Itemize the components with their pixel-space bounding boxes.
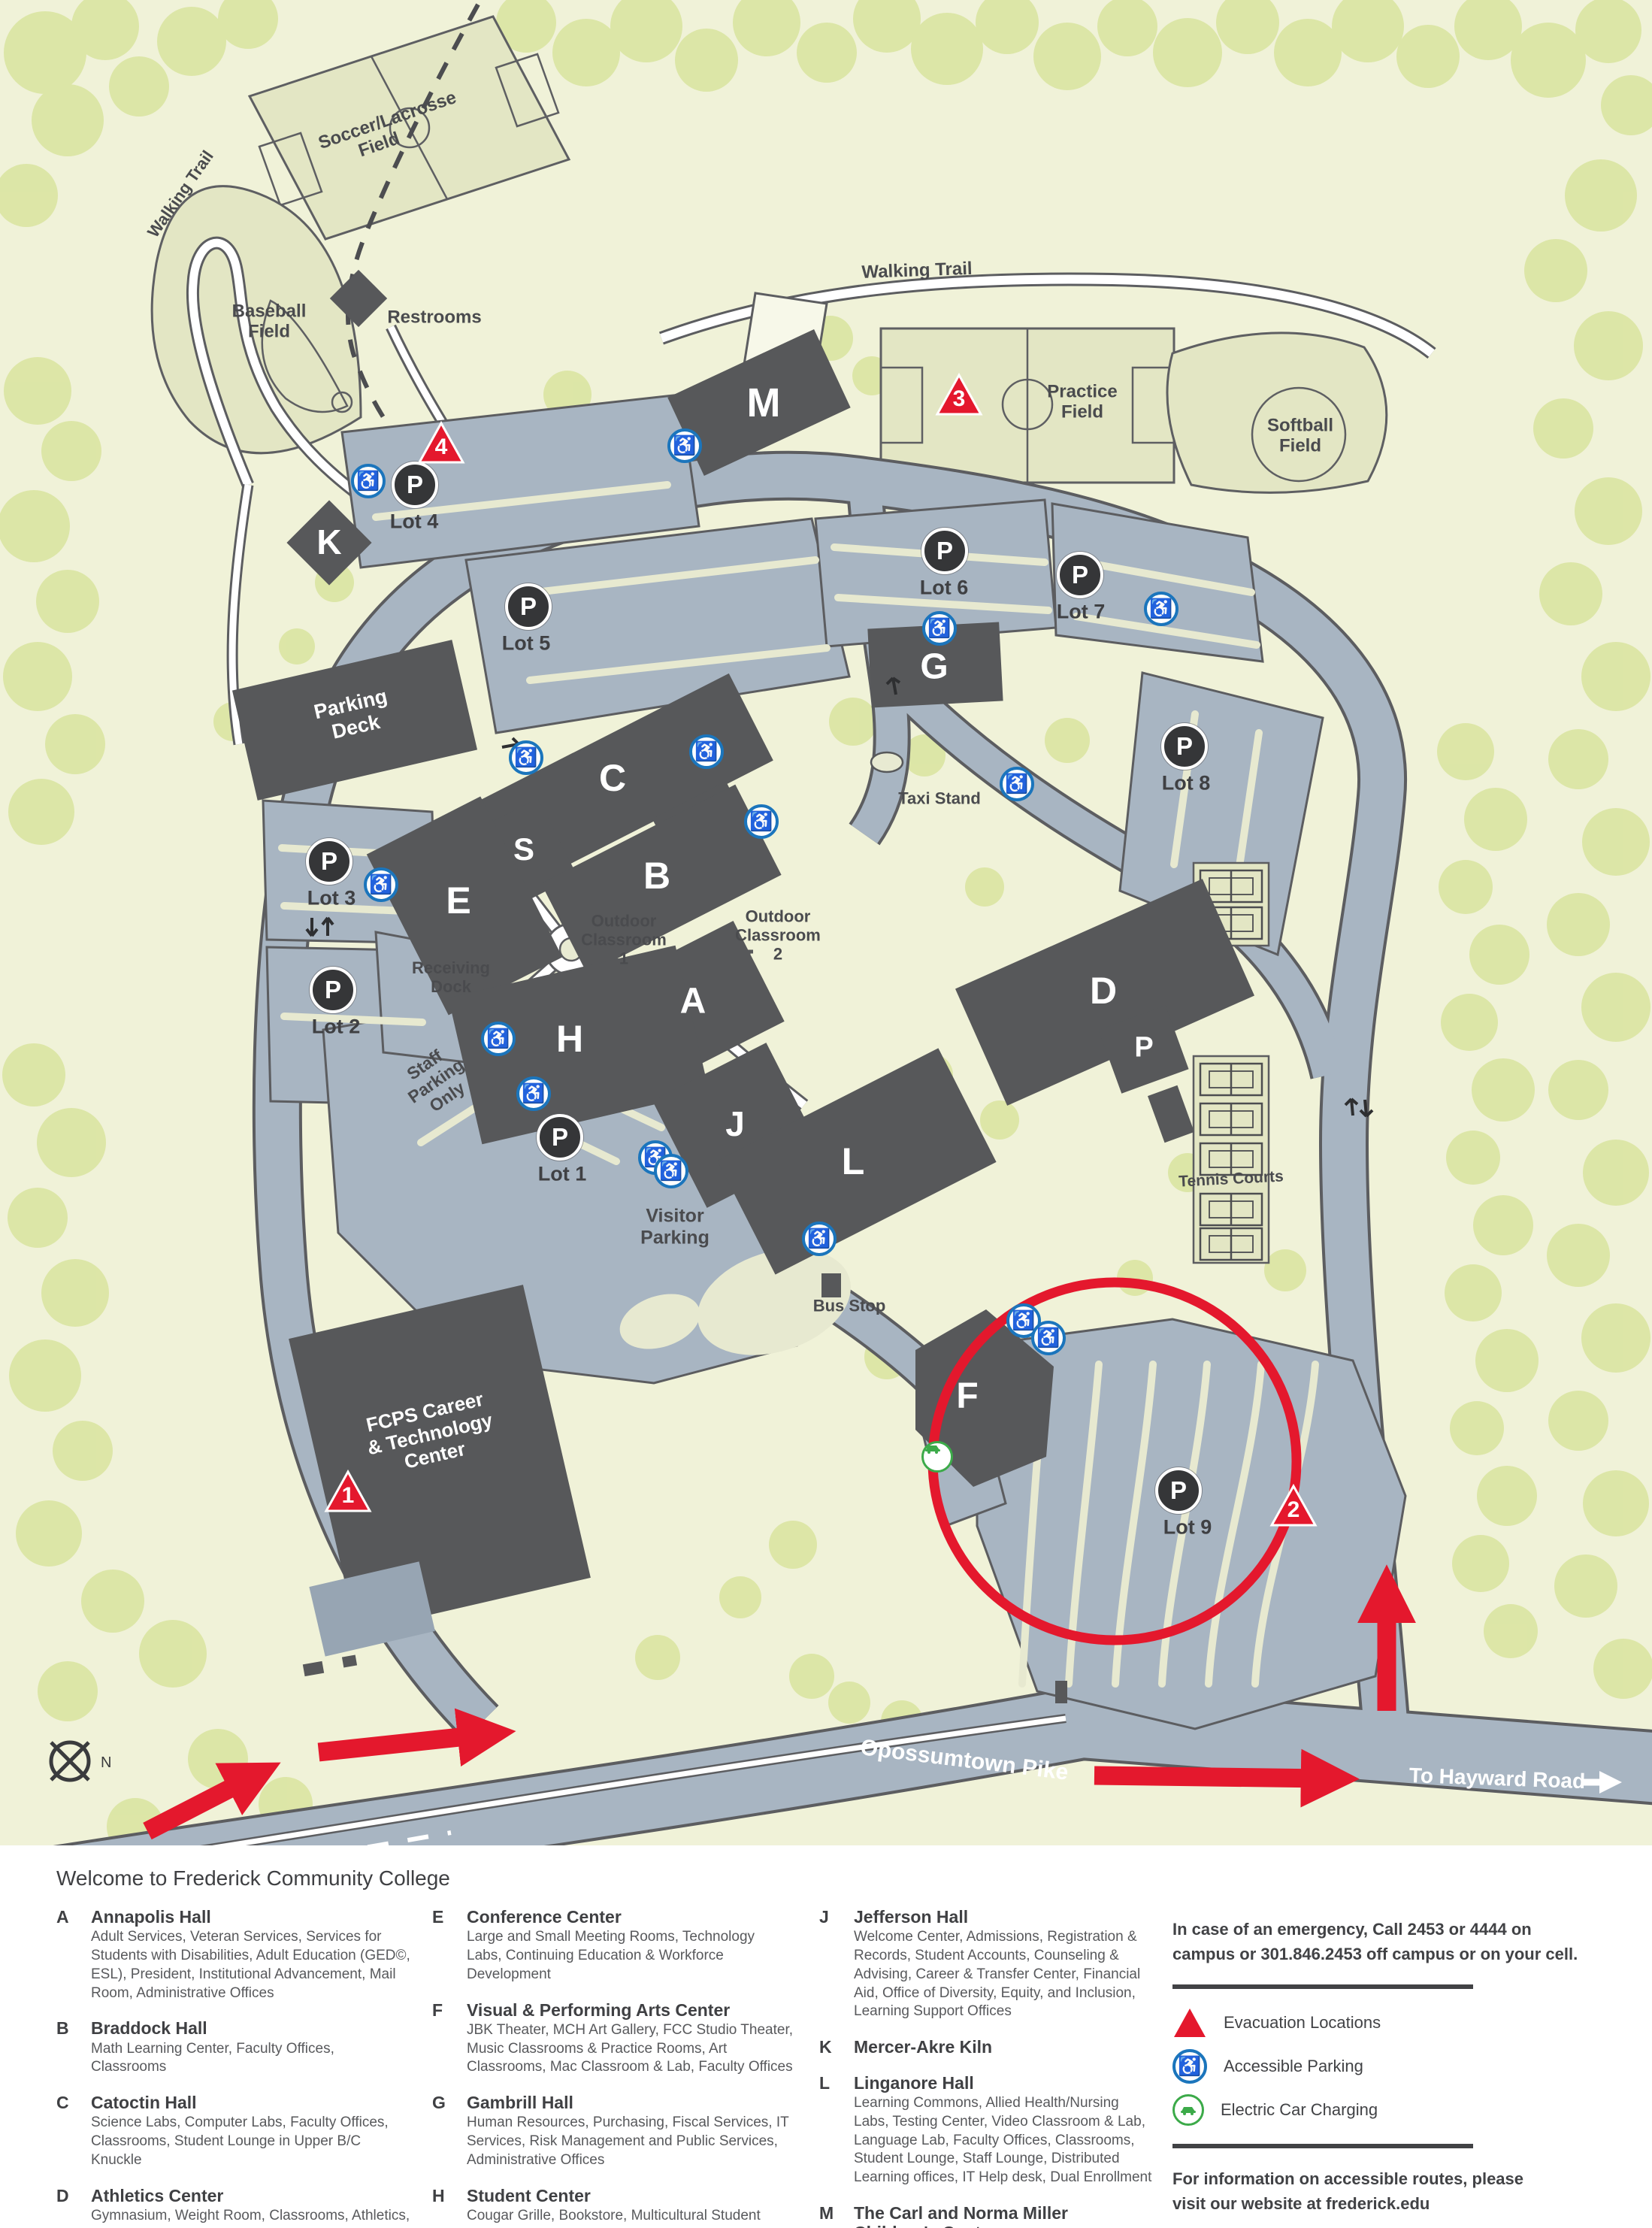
accessible-parking-icon: ♿ xyxy=(689,734,724,769)
tree xyxy=(38,1661,98,1721)
parking-marker-lot-2: P xyxy=(310,967,356,1013)
tree xyxy=(1565,159,1637,232)
tree xyxy=(1274,19,1342,86)
building-l-letter: L xyxy=(842,1140,865,1183)
lot-2-label: Lot 2 xyxy=(312,1016,361,1039)
legend-divider-bottom xyxy=(1172,2144,1473,2148)
parking-marker-lot-9: P xyxy=(1155,1467,1202,1514)
tree xyxy=(1045,718,1090,763)
softball-field-shape xyxy=(1167,333,1387,493)
tree xyxy=(53,1421,113,1481)
tree xyxy=(1439,860,1493,914)
accessible-parking-icon: ♿ xyxy=(516,1076,551,1111)
legend-column-4: In case of an emergency, Call 2453 or 44… xyxy=(1172,1917,1608,2216)
tree xyxy=(675,29,738,92)
tree xyxy=(37,1108,106,1177)
accessible-parking-icon: ♿ xyxy=(481,1022,516,1056)
lot-5-label: Lot 5 xyxy=(502,632,551,655)
legend-column-2: E Conference Center Large and Small Meet… xyxy=(432,1907,793,2228)
accessible-parking-icon: ♿ xyxy=(351,464,386,498)
outdoor-classroom-1-label: Outdoor Classroom 1 xyxy=(579,911,669,967)
building-c-letter: C xyxy=(599,756,626,800)
bus-stop-label: Bus Stop xyxy=(813,1296,886,1315)
tree xyxy=(8,1188,68,1248)
tree xyxy=(1593,1639,1652,1699)
building-g-letter: G xyxy=(920,646,948,688)
tree xyxy=(157,7,226,76)
tree xyxy=(1554,1554,1617,1618)
parking-marker-lot-4: P xyxy=(392,462,438,508)
tree xyxy=(41,421,101,481)
building-d-letter: D xyxy=(1090,969,1117,1013)
evacuation-location-1: 1 xyxy=(323,1469,373,1514)
tree xyxy=(109,56,169,117)
legend-entry-student-center: H Student Center Cougar Grille, Bookstor… xyxy=(432,2186,793,2228)
tree xyxy=(1548,729,1608,789)
tree xyxy=(45,714,105,774)
evacuation-location-2: 2 xyxy=(1269,1483,1318,1528)
accessible-parking-icon: ♿ xyxy=(1144,592,1178,626)
building-j-letter: J xyxy=(725,1103,745,1144)
tree xyxy=(1445,1264,1502,1321)
tree xyxy=(1547,893,1610,956)
electric-car-charging-icon xyxy=(921,1441,953,1473)
tree xyxy=(769,1521,817,1569)
tree xyxy=(635,1635,680,1680)
restrooms-label: Restrooms xyxy=(387,307,481,327)
building-h-letter: H xyxy=(556,1017,583,1061)
building-s-letter: S xyxy=(513,831,534,867)
tree xyxy=(1581,642,1650,711)
tree xyxy=(1524,239,1587,302)
accessible-parking-icon: ♿ xyxy=(667,428,702,463)
plant-operations-letter: P xyxy=(1134,1032,1153,1064)
tree xyxy=(41,1259,109,1327)
tree xyxy=(829,698,877,746)
outdoor-classroom-2-label: Outdoor Classroom 2 xyxy=(731,907,825,963)
tree xyxy=(16,1500,82,1567)
tree xyxy=(1475,1329,1539,1392)
evacuation-location-3: 3 xyxy=(934,372,984,417)
legend-entry-gambrill: G Gambrill Hall Human Resources, Purchas… xyxy=(432,2093,793,2170)
tree xyxy=(1473,1195,1533,1255)
tree xyxy=(980,1100,1019,1140)
tree xyxy=(1533,398,1593,459)
building-a-letter: A xyxy=(680,981,706,1022)
taxi-stand-label: Taxi Stand xyxy=(898,789,981,807)
tree xyxy=(552,19,620,86)
tree xyxy=(1396,25,1460,88)
tree xyxy=(1511,23,1586,98)
tree xyxy=(1472,1058,1535,1122)
accessible-parking-icon: ♿ xyxy=(364,867,398,902)
tree xyxy=(1581,973,1650,1042)
tree xyxy=(789,1654,834,1699)
legend-entry-linganore: L Linganore Hall Learning Commons, Allie… xyxy=(819,2073,1154,2187)
compass-north-label: N xyxy=(101,1754,111,1772)
tree xyxy=(1539,562,1602,625)
legend-entry-annapolis: A Annapolis Hall Adult Services, Veteran… xyxy=(56,1907,413,2002)
parking-marker-lot-1: P xyxy=(537,1114,583,1161)
accessible-routes-note: For information on accessible routes, pl… xyxy=(1172,2166,1548,2216)
legend-symbol-evacuation: Evacuation Locations xyxy=(1172,2007,1608,2039)
tree xyxy=(139,1620,207,1688)
tree xyxy=(965,867,1004,907)
tree xyxy=(1575,477,1642,545)
lot-6-label: Lot 6 xyxy=(920,577,969,600)
tree xyxy=(1264,1249,1306,1291)
visitor-parking-label: Visitor Parking xyxy=(634,1206,716,1249)
legend-entry-athletics: D Athletics Center Gymnasium, Weight Roo… xyxy=(56,2186,413,2228)
legend-entry-jefferson: J Jefferson Hall Welcome Center, Admissi… xyxy=(819,1907,1154,2021)
evacuation-location-4: 4 xyxy=(416,420,466,465)
parking-marker-lot-8: P xyxy=(1161,723,1208,770)
building-b-letter: B xyxy=(643,854,670,898)
tree xyxy=(81,1570,144,1633)
tree xyxy=(1582,808,1650,876)
tree xyxy=(1477,1466,1537,1526)
baseball-field-label: Baseball Field xyxy=(228,301,310,343)
tree xyxy=(0,490,70,562)
tree xyxy=(1484,1604,1538,1658)
tree xyxy=(1437,723,1494,780)
tree xyxy=(1469,925,1529,985)
tree xyxy=(1033,23,1101,90)
tree xyxy=(9,1340,81,1412)
tree xyxy=(1464,788,1527,851)
lot-9-label: Lot 9 xyxy=(1163,1516,1212,1539)
legend-entry-childrens-center: M The Carl and Norma Miller Children's C… xyxy=(819,2203,1154,2228)
parking-marker-lot-5: P xyxy=(505,583,552,630)
compass-rose: N xyxy=(45,1735,128,1788)
legend-entry-catoctin: C Catoctin Hall Science Labs, Computer L… xyxy=(56,2093,413,2170)
accessible-parking-icon: ♿ xyxy=(509,740,543,775)
tree xyxy=(1548,1060,1608,1120)
emergency-note: In case of an emergency, Call 2453 or 44… xyxy=(1172,1917,1593,1966)
receiving-dock-label: Receiving Dock xyxy=(406,958,496,996)
building-f-letter: F xyxy=(956,1376,978,1417)
tree xyxy=(1548,1391,1608,1451)
tree xyxy=(797,23,857,83)
campus-map: Walking Trail Walking Trail Soccer/Lacro… xyxy=(0,0,1652,1863)
map-base-art xyxy=(0,0,1652,1863)
bus-stop-shelter xyxy=(821,1273,841,1297)
softball-field-label: Softball Field xyxy=(1263,416,1338,457)
legend-symbol-accessible: ♿ Accessible Parking xyxy=(1172,2049,1608,2084)
accessible-parking-icon: ♿ xyxy=(1031,1321,1066,1355)
route-arrow-3 xyxy=(1094,1775,1324,1778)
tree xyxy=(1450,1401,1504,1455)
parking-marker-lot-3: P xyxy=(306,838,352,885)
tree xyxy=(1583,1140,1649,1206)
lot-3-label: Lot 3 xyxy=(307,887,356,910)
campus-map-page: Walking Trail Walking Trail Soccer/Lacro… xyxy=(0,0,1652,2228)
tree xyxy=(1575,0,1641,63)
parking-marker-lot-7: P xyxy=(1057,552,1103,598)
tree xyxy=(279,628,315,664)
map-legend: Welcome to Frederick Community College A… xyxy=(0,1845,1652,2228)
tree xyxy=(719,1576,761,1618)
tree xyxy=(828,1682,870,1724)
tree xyxy=(36,570,99,633)
evacuation-triangle-icon xyxy=(1172,2007,1207,2039)
legend-entry-conference: E Conference Center Large and Small Meet… xyxy=(432,1907,793,1984)
tree xyxy=(1452,1535,1509,1592)
accessible-parking-icon: ♿ xyxy=(922,611,957,646)
tree xyxy=(911,13,983,85)
accessible-parking-icon: ♿ xyxy=(1172,2049,1207,2084)
legend-entry-braddock: B Braddock Hall Math Learning Center, Fa… xyxy=(56,2018,413,2077)
tree xyxy=(32,84,104,156)
tree xyxy=(1547,1224,1610,1287)
accessible-parking-icon: ♿ xyxy=(1000,767,1034,801)
tree xyxy=(2,1043,65,1106)
legend-divider-top xyxy=(1172,1984,1473,1989)
parking-marker-lot-6: P xyxy=(921,528,968,574)
legend-column-1: A Annapolis Hall Adult Services, Veteran… xyxy=(56,1907,413,2228)
tree xyxy=(1153,18,1222,87)
building-k-letter: K xyxy=(316,522,341,562)
electric-car-charging-icon xyxy=(1172,2094,1204,2126)
building-e-letter: E xyxy=(446,879,470,922)
accessible-parking-icon: ♿ xyxy=(744,804,779,839)
lot-1-label: Lot 1 xyxy=(538,1163,587,1186)
tree xyxy=(1574,311,1643,380)
taxi-stand-oval xyxy=(871,752,903,772)
accessible-parking-icon: ♿ xyxy=(654,1154,688,1188)
lot-4-label: Lot 4 xyxy=(390,510,439,534)
accessible-parking-icon: ♿ xyxy=(802,1221,837,1256)
tree xyxy=(3,642,72,711)
legend-symbol-ev: Electric Car Charging xyxy=(1172,2094,1608,2126)
lot-7-label: Lot 7 xyxy=(1057,601,1106,624)
practice-field-label: Practice Field xyxy=(1041,382,1124,423)
tree xyxy=(8,779,74,845)
tree xyxy=(1581,1303,1650,1373)
legend-entry-vpa: F Visual & Performing Arts Center JBK Th… xyxy=(432,2000,793,2078)
tree xyxy=(1446,1131,1500,1185)
legend-entry-kiln: K Mercer-Akre Kiln xyxy=(819,2037,1154,2057)
tree xyxy=(4,357,71,425)
tree xyxy=(1583,1470,1649,1536)
building-m-letter: M xyxy=(747,380,781,426)
legend-title: Welcome to Frederick Community College xyxy=(56,1866,450,1890)
tree xyxy=(1441,994,1498,1051)
legend-column-3: J Jefferson Hall Welcome Center, Admissi… xyxy=(819,1907,1154,2228)
lot-8-label: Lot 8 xyxy=(1162,772,1211,795)
